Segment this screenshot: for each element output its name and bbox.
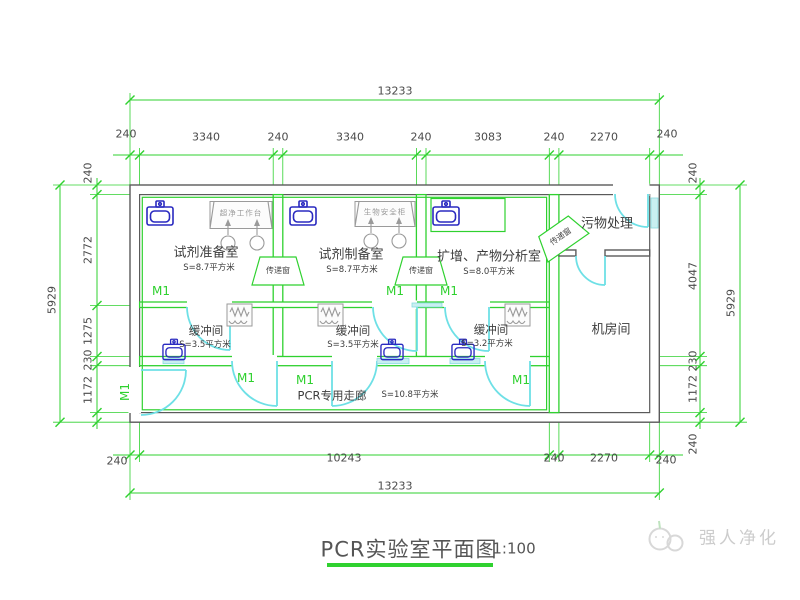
brand-name: 强人净化 bbox=[699, 531, 779, 548]
buffer1-name: 缓冲间 bbox=[189, 325, 224, 337]
dim-bottom-overall: 13233 bbox=[378, 481, 413, 492]
waste-room-name: 污物处理 bbox=[581, 218, 633, 231]
dim-right-seg: 240 bbox=[688, 434, 699, 455]
door-label: M1 bbox=[440, 285, 458, 297]
door-label: M1 bbox=[512, 374, 530, 386]
dim-bottom-seg: 10243 bbox=[327, 453, 362, 464]
drawing-title: PCR实验室平面图 bbox=[321, 540, 498, 561]
dim-bottom-seg: 240 bbox=[544, 453, 565, 464]
room-reagent-prep-area: S=8.7平方米 bbox=[183, 264, 235, 273]
pass-window-label: 传递窗 bbox=[266, 267, 290, 275]
dim-left-seg: 230 bbox=[83, 350, 94, 371]
clean-bench-label: 超净工作台 bbox=[220, 209, 263, 217]
dim-left-seg: 240 bbox=[83, 163, 94, 184]
dim-top-seg: 3340 bbox=[192, 132, 220, 143]
dim-right-seg: 240 bbox=[688, 163, 699, 184]
dim-right-seg: 230 bbox=[688, 351, 699, 372]
door-label: M1 bbox=[119, 383, 131, 401]
dim-right-overall: 5929 bbox=[726, 289, 737, 317]
buffer3-area: S=3.2平方米 bbox=[461, 340, 513, 349]
corridor-name: PCR专用走廊 bbox=[298, 390, 367, 402]
hvac-unit-icon bbox=[505, 304, 530, 326]
dim-top-seg: 3340 bbox=[336, 132, 364, 143]
pcr-lab-floorplan: 13233 240 3340 240 3340 240 3083 240 227… bbox=[0, 0, 800, 600]
dim-left-seg: 1172 bbox=[83, 376, 94, 404]
drawing-scale: 1:100 bbox=[492, 542, 535, 557]
dim-top-seg: 240 bbox=[411, 132, 432, 143]
room-reagent-prep-name: 试剂准备室 bbox=[173, 247, 238, 260]
room-amplification-name: 扩增、产物分析室 bbox=[437, 251, 541, 264]
buffer1-area: S=3.5平方米 bbox=[179, 341, 231, 350]
hvac-unit-icon bbox=[227, 304, 252, 326]
door-label: M1 bbox=[386, 285, 404, 297]
room-reagent-make-area: S=8.7平方米 bbox=[326, 266, 378, 275]
buffer2-name: 缓冲间 bbox=[336, 325, 371, 337]
dim-bottom-seg: 2270 bbox=[590, 453, 618, 464]
dim-top-seg: 3083 bbox=[474, 132, 502, 143]
brand-logo-icon bbox=[650, 521, 683, 551]
dim-left-seg: 1275 bbox=[83, 317, 94, 345]
biosafety-cabinet-label: 生物安全柜 bbox=[364, 208, 407, 216]
dim-top-seg: 2270 bbox=[590, 132, 618, 143]
room-reagent-make-name: 试剂制备室 bbox=[318, 249, 383, 262]
dim-left-overall: 5929 bbox=[47, 286, 58, 314]
dim-top-overall: 13233 bbox=[378, 86, 413, 97]
door-label: M1 bbox=[152, 285, 170, 297]
buffer2-area: S=3.5平方米 bbox=[327, 341, 379, 350]
pass-window-label: 传递窗 bbox=[409, 267, 433, 275]
dim-top-seg: 240 bbox=[268, 132, 289, 143]
machine-room-name: 机房间 bbox=[591, 324, 630, 337]
dim-top-seg: 240 bbox=[657, 129, 678, 140]
room-amplification-area: S=8.0平方米 bbox=[463, 268, 515, 277]
buffer3-name: 缓冲间 bbox=[474, 324, 509, 336]
dim-bottom-seg: 240 bbox=[107, 456, 128, 467]
corridor-area: S=10.8平方米 bbox=[382, 391, 439, 400]
dim-bottom-seg: 240 bbox=[656, 455, 677, 466]
dim-top-seg: 240 bbox=[544, 132, 565, 143]
dim-right-seg: 4047 bbox=[688, 262, 699, 290]
title-underline bbox=[327, 563, 493, 567]
door-label: M1 bbox=[237, 372, 255, 384]
dim-top-seg: 240 bbox=[116, 129, 137, 140]
door-label: M1 bbox=[296, 374, 314, 386]
dim-right-seg: 1172 bbox=[688, 375, 699, 403]
dim-left-seg: 2772 bbox=[83, 236, 94, 264]
